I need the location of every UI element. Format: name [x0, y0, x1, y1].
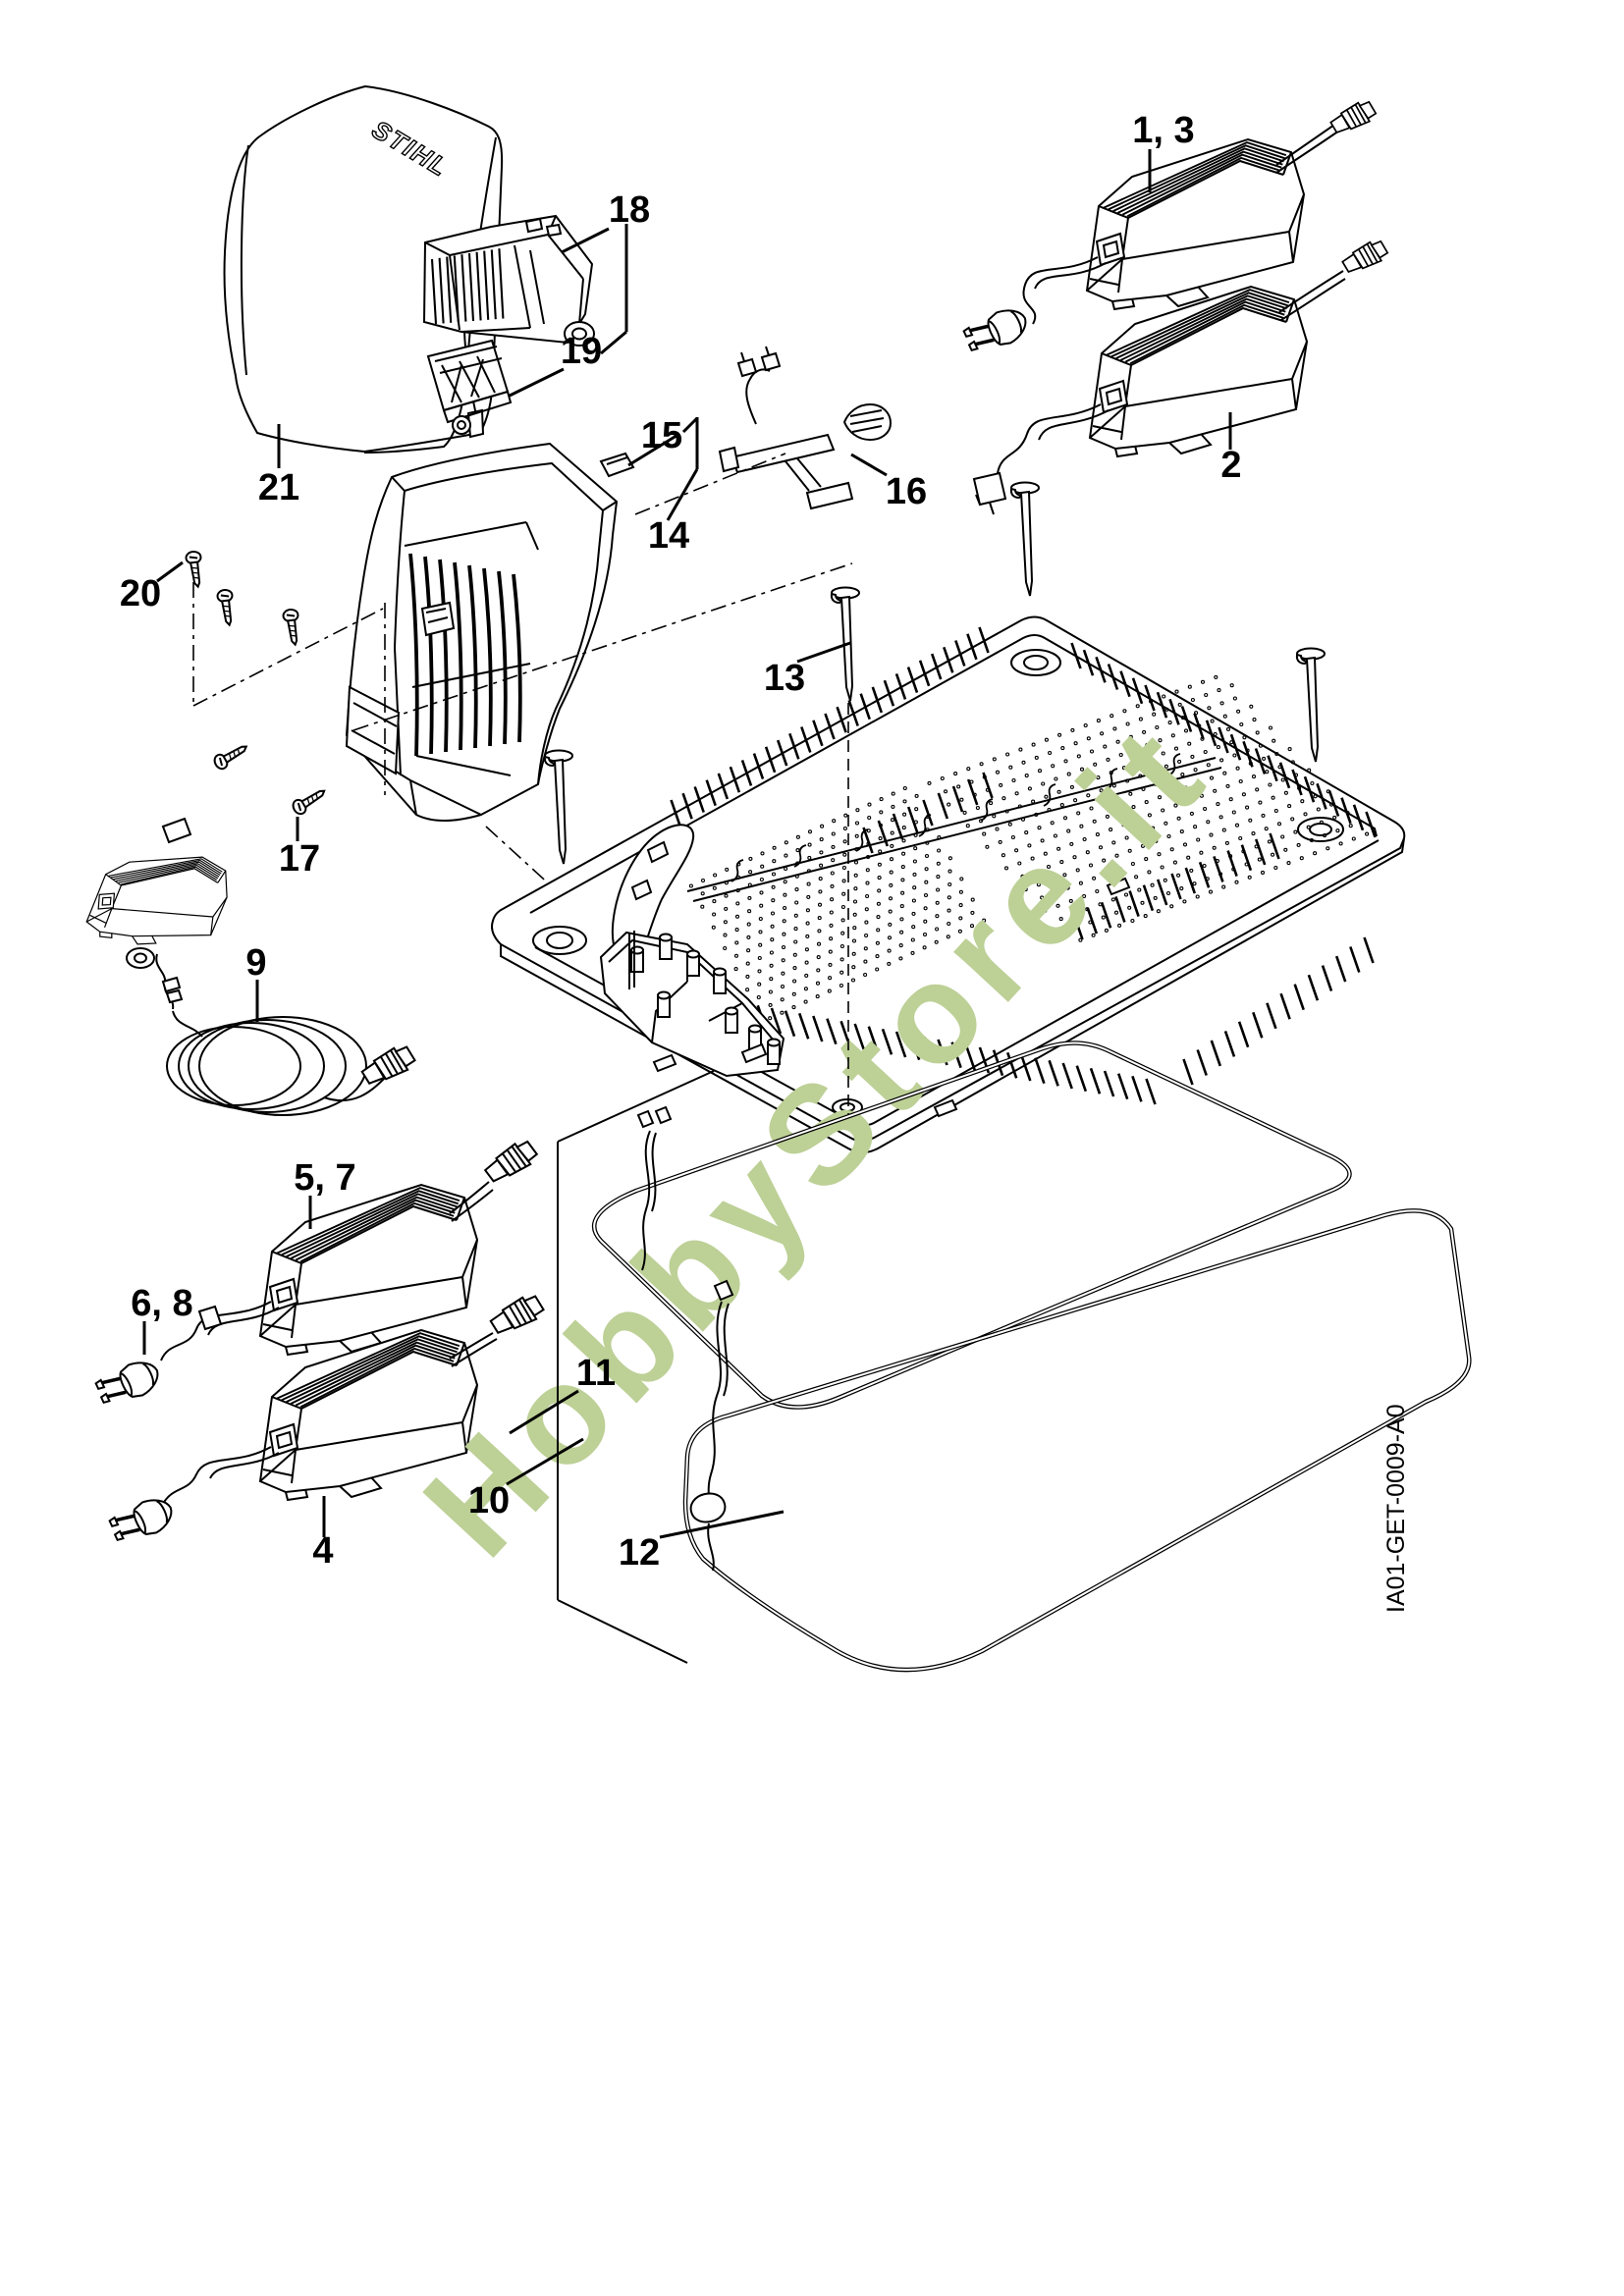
- svg-text:11: 11: [576, 1353, 616, 1394]
- svg-text:12: 12: [619, 1532, 660, 1574]
- svg-text:1, 3: 1, 3: [1132, 110, 1194, 151]
- svg-text:10: 10: [468, 1480, 510, 1522]
- svg-text:19: 19: [561, 331, 602, 372]
- svg-text:5, 7: 5, 7: [294, 1157, 355, 1199]
- svg-text:16: 16: [886, 471, 927, 512]
- svg-text:17: 17: [279, 838, 320, 880]
- svg-text:18: 18: [609, 189, 650, 231]
- svg-text:9: 9: [245, 942, 266, 984]
- svg-text:13: 13: [764, 658, 805, 699]
- svg-text:6, 8: 6, 8: [131, 1283, 192, 1324]
- svg-text:2: 2: [1220, 445, 1241, 486]
- svg-text:IA01-GET-0009-A0: IA01-GET-0009-A0: [1382, 1404, 1410, 1613]
- svg-text:21: 21: [258, 467, 299, 508]
- svg-text:14: 14: [648, 515, 689, 557]
- svg-text:20: 20: [120, 573, 161, 614]
